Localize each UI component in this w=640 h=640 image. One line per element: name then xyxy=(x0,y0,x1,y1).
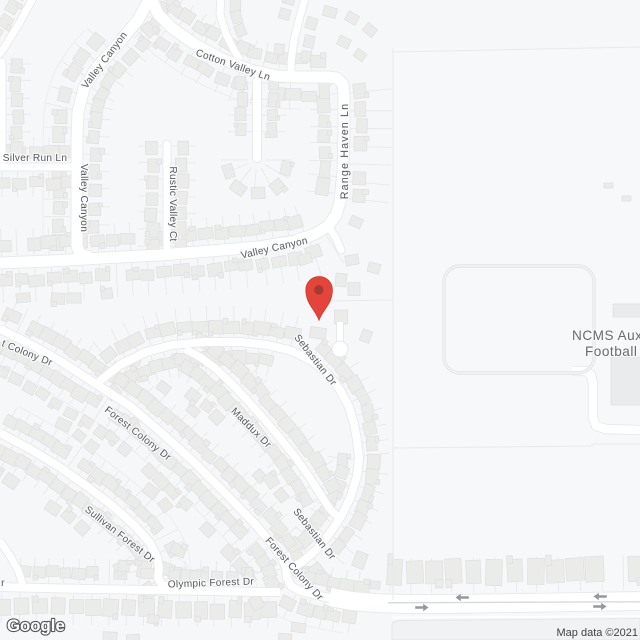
svg-text:Silver Run Ln: Silver Run Ln xyxy=(3,153,68,164)
svg-text:Google: Google xyxy=(7,616,65,635)
svg-text:Rustic Valley Ct: Rustic Valley Ct xyxy=(167,166,178,241)
svg-text:Map data ©2021: Map data ©2021 xyxy=(557,627,639,639)
svg-text:Range Haven Ln: Range Haven Ln xyxy=(339,103,351,199)
svg-text:Football Fie: Football Fie xyxy=(585,344,640,359)
svg-text:NCMS Auxiliary: NCMS Auxiliary xyxy=(572,328,640,343)
svg-text:r: r xyxy=(1,578,5,589)
svg-text:Valley Canyon: Valley Canyon xyxy=(78,164,89,232)
